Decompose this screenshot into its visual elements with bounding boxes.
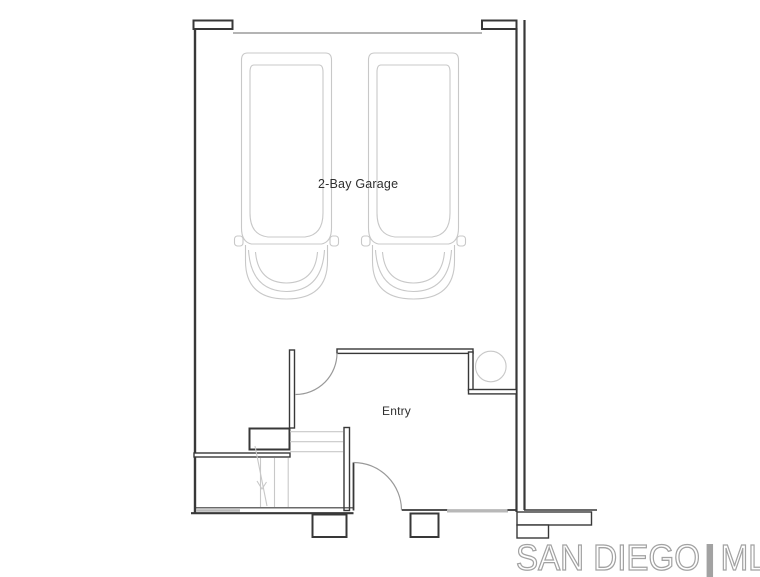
car-outline-right [362,53,466,299]
car-body [369,53,459,244]
watermark-text-left: SAN DIEGO [516,540,700,576]
entry-left-wall [290,350,295,428]
car-windshield-outer [249,250,325,292]
entry-room-label: Entry [382,404,411,418]
exterior-step-large [517,512,592,525]
water-heater-niche-left-wall [469,352,474,391]
entry-top-wall [337,349,473,353]
car-front-bumper [246,245,328,299]
car-windshield-inner [383,252,445,283]
floorplan-page: 2-Bay Garage Entry SAN DIEGO | MLS [0,0,760,577]
car-front-bumper [373,245,455,299]
garage-room-label: 2-Bay Garage [318,177,398,191]
car-mirror-left [362,236,371,246]
car-windshield-outer [376,250,452,292]
car-mirror-right [457,236,466,246]
car-cabin [377,65,450,237]
water-heater [476,351,507,382]
car-body [242,53,332,244]
mls-watermark: SAN DIEGO | MLS [516,540,760,576]
floorplan-drawing [0,0,760,577]
watermark-separator-bar: | [700,540,721,576]
stair-right-wall [344,428,350,511]
porch-step-left [313,515,347,538]
water-heater-niche-bottom-wall [469,390,517,394]
car-outline-left [235,53,339,299]
car-mirror-left [235,236,244,246]
top-right-wall-stub [482,21,517,30]
under-stair-wall [194,453,290,457]
watermark-text-right: MLS [721,540,760,576]
car-cabin [250,65,323,237]
car-mirror-right [330,236,339,246]
car-windshield-inner [256,252,318,283]
front-door-arc [354,463,402,511]
top-left-wall-stub [194,21,233,30]
porch-step-right [411,514,439,538]
garage-entry-door-arc [296,353,338,395]
